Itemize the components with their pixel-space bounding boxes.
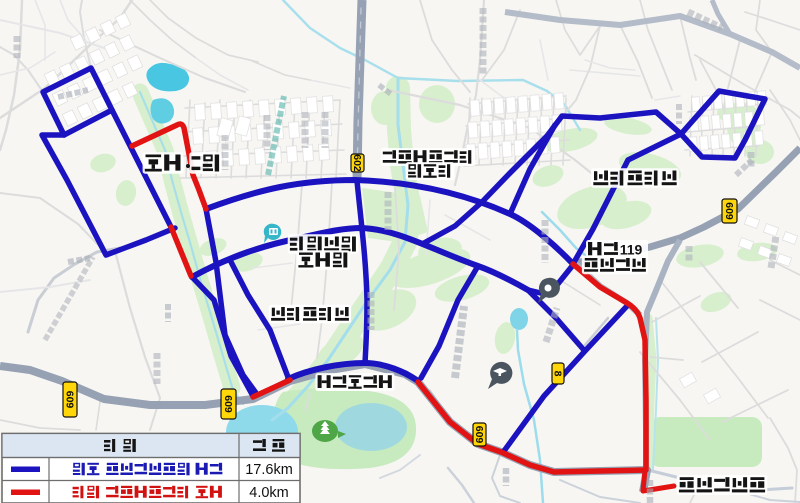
svg-text:119: 119 bbox=[620, 242, 643, 258]
svg-text:4.0km: 4.0km bbox=[249, 485, 289, 501]
svg-text:602: 602 bbox=[351, 154, 363, 172]
svg-text:609: 609 bbox=[723, 202, 735, 220]
svg-text:609: 609 bbox=[473, 426, 485, 444]
svg-text:609: 609 bbox=[222, 395, 234, 413]
svg-text:17.6km: 17.6km bbox=[245, 462, 293, 478]
svg-text:8: 8 bbox=[551, 371, 563, 377]
svg-text:609: 609 bbox=[63, 391, 75, 409]
